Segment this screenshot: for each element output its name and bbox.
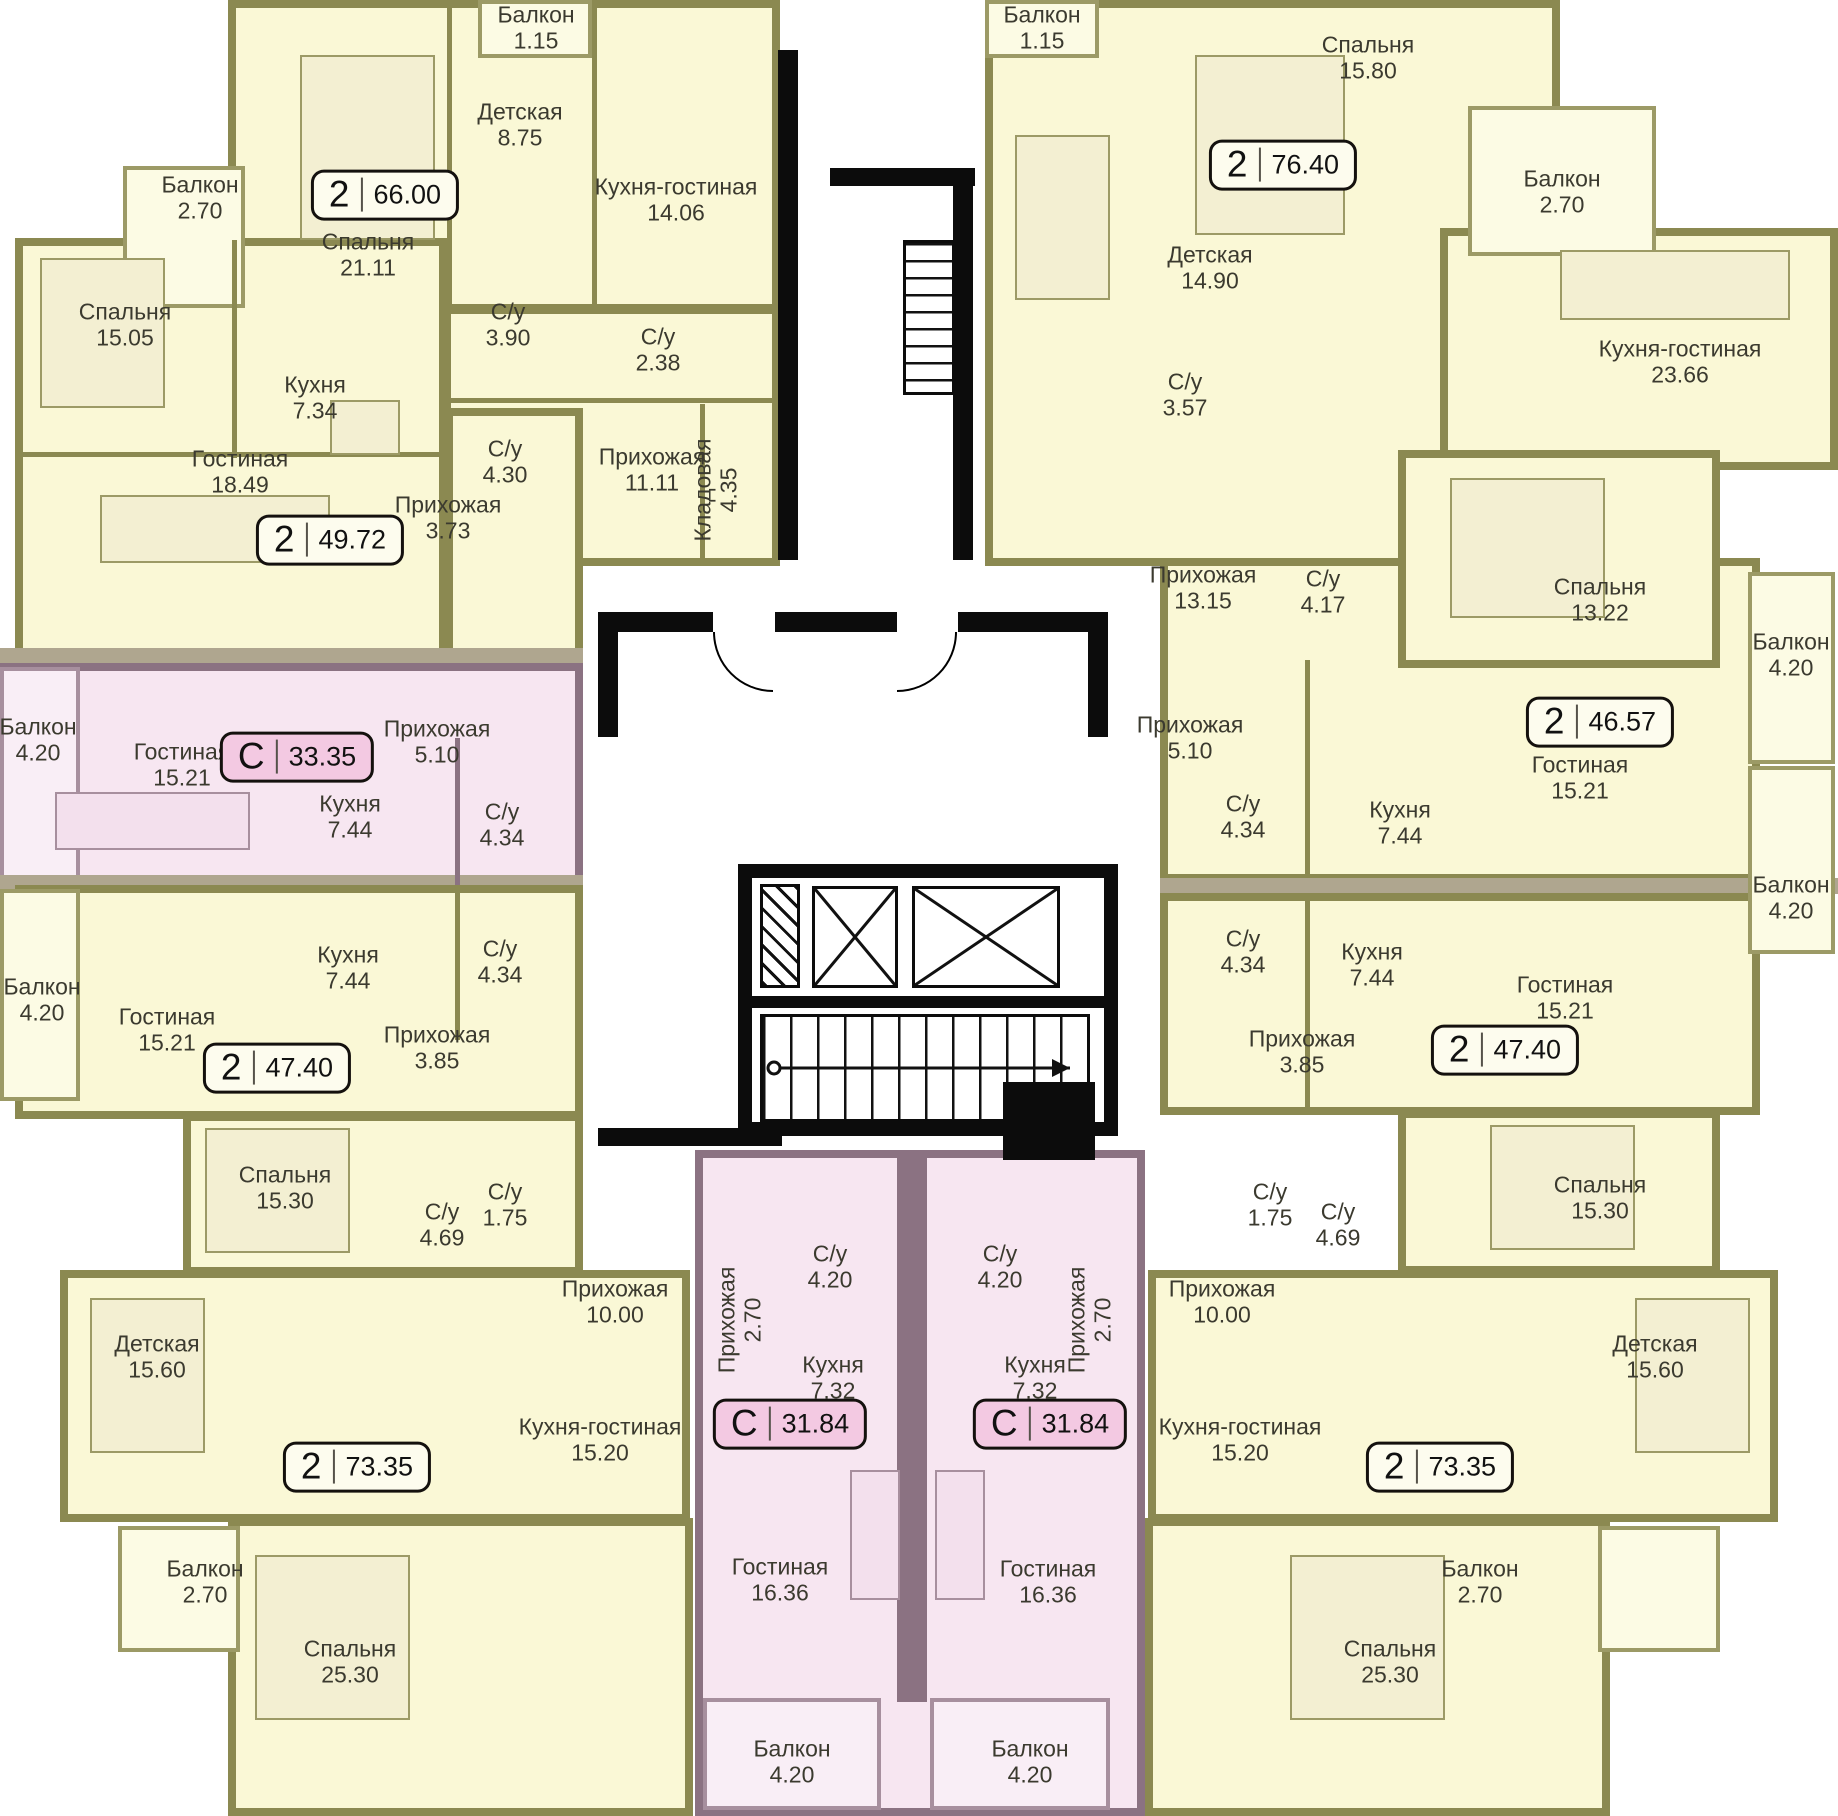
- room-area: 4.20: [770, 1762, 815, 1788]
- badge-area: 73.35: [346, 1452, 414, 1483]
- room-area: 4.20: [16, 740, 61, 766]
- room-label-kitchen: Кухня7.34: [284, 372, 346, 424]
- room-name: С/у: [813, 1241, 848, 1267]
- room-label-bathroom: С/у4.17: [1301, 566, 1346, 618]
- room-area: 7.44: [328, 817, 373, 843]
- room-name: Балкон: [3, 974, 80, 1000]
- room-label-bathroom: С/у4.69: [1316, 1199, 1361, 1251]
- elevator-icon: [812, 886, 898, 988]
- room-name: Кухня: [284, 372, 346, 398]
- room-area: 13.22: [1571, 600, 1629, 626]
- room-area: 3.73: [426, 518, 471, 544]
- partition: [1305, 660, 1310, 878]
- room-label-bedroom: Спальня15.05: [79, 299, 171, 351]
- room-name: С/у: [1168, 369, 1203, 395]
- room-name: С/у: [1321, 1199, 1356, 1225]
- badge-type: С: [991, 1405, 1018, 1444]
- room-name: Прихожая: [1064, 1267, 1090, 1374]
- partition: [443, 398, 780, 403]
- room-label-bathroom: С/у4.34: [480, 799, 525, 851]
- room-area: 25.30: [1361, 1662, 1419, 1688]
- room-area: 5.10: [415, 742, 460, 768]
- door-arc: [713, 632, 773, 692]
- room-area: 15.21: [153, 765, 211, 791]
- room-area: 5.10: [1168, 738, 1213, 764]
- room-label-hallway: Прихожая2.70: [1064, 1267, 1116, 1374]
- room-label-hallway: Прихожая5.10: [1137, 712, 1244, 764]
- room-name: Детская: [1167, 242, 1252, 268]
- room-name: Спальня: [1322, 32, 1414, 58]
- room-label-balcony: Балкон1.15: [1003, 2, 1080, 54]
- room-area: 8.75: [498, 125, 543, 151]
- room-label-bathroom: С/у4.69: [420, 1199, 465, 1251]
- room-name: Кухня: [1341, 939, 1403, 965]
- room-label-balcony: Балкон2.70: [1523, 166, 1600, 218]
- badge-area: 47.40: [1494, 1035, 1562, 1066]
- room-area: 15.20: [571, 1440, 629, 1466]
- room-label-bathroom: С/у1.75: [483, 1179, 528, 1231]
- room-area: 16.36: [1019, 1582, 1077, 1608]
- room-name: С/у: [425, 1199, 460, 1225]
- badge-divider: [306, 523, 308, 557]
- room-label-kitchen-living: Кухня-гостиная15.20: [514, 1414, 686, 1466]
- room-area: 15.60: [1626, 1357, 1684, 1383]
- badge-type: 2: [1227, 146, 1248, 185]
- room-label-living: Гостиная16.36: [732, 1554, 829, 1606]
- room-name: Прихожая: [384, 1022, 491, 1048]
- room-label-kitchen: Кухня7.32: [1004, 1352, 1066, 1404]
- room-label-bathroom: С/у4.34: [1221, 791, 1266, 843]
- balcony-apt-47-40-right: [1748, 766, 1835, 954]
- room-name: Балкон: [1752, 872, 1829, 898]
- room-area: 16.36: [751, 1580, 809, 1606]
- room-name: Балкон: [0, 714, 77, 740]
- badge-type: 2: [221, 1049, 242, 1088]
- apartment-badge-46-57: 246.57: [1526, 697, 1674, 748]
- core-wall: [598, 1128, 782, 1146]
- room-name: Кухня: [1369, 797, 1431, 823]
- room-area: 10.00: [1193, 1302, 1251, 1328]
- room-label-kitchen: Кухня7.44: [319, 791, 381, 843]
- room-label-kids-room: Детская8.75: [477, 99, 562, 151]
- room-name: Кухня-гостиная: [590, 174, 762, 200]
- room-area: 15.20: [1211, 1440, 1269, 1466]
- room-name: Спальня: [304, 1636, 396, 1662]
- room-area: 4.20: [1769, 898, 1814, 924]
- room-label-balcony: Балкон4.20: [753, 1736, 830, 1788]
- badge-area: 73.35: [1429, 1452, 1497, 1483]
- badge-divider: [769, 1407, 771, 1441]
- room-name: Прихожая: [395, 492, 502, 518]
- room-area: 14.90: [1181, 268, 1239, 294]
- corridor-wall: [775, 612, 897, 632]
- door-arc: [897, 632, 957, 692]
- room-area: 15.21: [1551, 778, 1609, 804]
- badge-area: 31.84: [782, 1409, 850, 1440]
- room-area: 10.00: [586, 1302, 644, 1328]
- room-area: 15.21: [1536, 998, 1594, 1024]
- room-area: 1.15: [514, 28, 559, 54]
- badge-area: 33.35: [289, 742, 357, 773]
- room-label-kids-room: Детская15.60: [114, 1331, 199, 1383]
- room-name: Спальня: [1554, 574, 1646, 600]
- room-label-living: Гостиная15.21: [1517, 972, 1614, 1024]
- room-area: 1.75: [483, 1205, 528, 1231]
- room-area: 13.15: [1174, 588, 1232, 614]
- room-name: Прихожая: [1137, 712, 1244, 738]
- room-name: Детская: [1612, 1331, 1697, 1357]
- room-area: 15.80: [1339, 58, 1397, 84]
- room-label-bedroom: Спальня15.30: [239, 1162, 331, 1214]
- core-wall: [953, 168, 973, 560]
- room-label-kitchen: Кухня7.32: [802, 1352, 864, 1404]
- room-area: 15.30: [1571, 1198, 1629, 1224]
- room-label-kitchen: Кухня7.44: [1341, 939, 1403, 991]
- room-label-bathroom: С/у1.75: [1248, 1179, 1293, 1231]
- staircase-top: [903, 240, 955, 395]
- room-name: С/у: [1226, 926, 1261, 952]
- apartment-badge-47-40-right: 247.40: [1431, 1025, 1579, 1076]
- room-label-kitchen-living: Кухня-гостиная23.66: [1599, 336, 1762, 388]
- room-name: Прихожая: [384, 716, 491, 742]
- room-label-hallway: Прихожая5.10: [384, 716, 491, 768]
- room-area: 4.20: [808, 1267, 853, 1293]
- room-name: Кухня: [802, 1352, 864, 1378]
- room-area: 23.66: [1651, 362, 1709, 388]
- apartment-badge-31-84-right: С31.84: [973, 1399, 1127, 1450]
- sofa-furniture: [850, 1470, 900, 1600]
- badge-area: 31.84: [1042, 1409, 1110, 1440]
- room-name: Детская: [477, 99, 562, 125]
- room-label-bedroom: Спальня15.30: [1554, 1172, 1646, 1224]
- badge-type: 2: [329, 176, 350, 215]
- room-area: 15.60: [128, 1357, 186, 1383]
- room-area: 15.21: [138, 1030, 196, 1056]
- badge-type: 2: [1384, 1448, 1405, 1487]
- room-area: 1.15: [1020, 28, 1065, 54]
- shaft-hatch: [760, 884, 800, 988]
- badge-divider: [1576, 705, 1578, 739]
- room-name: С/у: [485, 799, 520, 825]
- room-name: С/у: [641, 324, 676, 350]
- room-area: 4.34: [478, 962, 523, 988]
- room-name: С/у: [1253, 1179, 1288, 1205]
- room-area: 4.69: [420, 1225, 465, 1251]
- room-name: Кухня-гостиная: [1599, 336, 1762, 362]
- room-name: Балкон: [1441, 1556, 1518, 1582]
- badge-area: 66.00: [374, 180, 442, 211]
- room-label-bedroom: Спальня13.22: [1554, 574, 1646, 626]
- room-label-bedroom: Спальня25.30: [1344, 1636, 1436, 1688]
- badge-divider: [276, 740, 278, 774]
- apartment-badge-47-40-left: 247.40: [203, 1043, 351, 1094]
- room-label-kids-room: Детская14.90: [1167, 242, 1252, 294]
- wall-studios-center: [897, 1150, 927, 1702]
- partition: [447, 6, 452, 308]
- room-label-bedroom: Спальня25.30: [304, 1636, 396, 1688]
- room-label-bedroom: Спальня21.11: [322, 229, 414, 281]
- apartment-badge-33-35: С33.35: [220, 732, 374, 783]
- core-wall: [752, 996, 1104, 1008]
- apartment-badge-73-35-left: 273.35: [283, 1442, 431, 1493]
- badge-type: С: [238, 738, 265, 777]
- balcony-apt-73-35-right: [1598, 1526, 1720, 1652]
- room-area: 2.70: [1458, 1582, 1503, 1608]
- room-name: С/у: [983, 1241, 1018, 1267]
- room-name: Спальня: [79, 299, 171, 325]
- wall-divider: [0, 648, 583, 664]
- room-area: 15.05: [96, 325, 154, 351]
- room-name: Кухня: [319, 791, 381, 817]
- apartment-badge-49-72: 249.72: [256, 515, 404, 566]
- core-wall: [778, 50, 798, 560]
- room-area: 21.11: [340, 255, 396, 281]
- room-name: Кладовая: [690, 438, 716, 541]
- corridor-wall: [958, 612, 1108, 632]
- badge-area: 46.57: [1589, 707, 1657, 738]
- floor-plan: 266.00 249.72 С33.35 247.40 273.35 С31.8…: [0, 0, 1838, 1816]
- room-name: Гостиная: [119, 1004, 216, 1030]
- sofa-furniture: [1560, 250, 1790, 320]
- room-area: 3.90: [486, 325, 531, 351]
- partition: [1305, 895, 1310, 1113]
- room-name: Балкон: [497, 2, 574, 28]
- room-area: 4.34: [1221, 817, 1266, 843]
- badge-type: 2: [301, 1448, 322, 1487]
- room-area: 2.70: [1090, 1298, 1116, 1343]
- room-name: С/у: [488, 1179, 523, 1205]
- room-label-balcony: Балкон4.20: [991, 1736, 1068, 1788]
- badge-type: 2: [1544, 703, 1565, 742]
- room-name: Прихожая: [1169, 1276, 1276, 1302]
- room-name: Кухня: [1004, 1352, 1066, 1378]
- room-label-hallway: Прихожая13.15: [1150, 562, 1257, 614]
- room-area: 4.34: [480, 825, 525, 851]
- room-label-bathroom: С/у3.57: [1163, 369, 1208, 421]
- room-area: 4.20: [1008, 1762, 1053, 1788]
- room-label-kitchen: Кухня7.44: [317, 942, 379, 994]
- room-label-bathroom: С/у4.34: [1221, 926, 1266, 978]
- room-area: 2.70: [183, 1582, 228, 1608]
- room-name: Гостиная: [134, 739, 231, 765]
- room-area: 7.44: [1378, 823, 1423, 849]
- room-area: 14.06: [647, 200, 705, 226]
- badge-divider: [1029, 1407, 1031, 1441]
- partition: [592, 6, 597, 308]
- room-area: 2.70: [1540, 192, 1585, 218]
- apartment-badge-76-40: 276.40: [1209, 140, 1357, 191]
- room-area: 4.35: [716, 468, 742, 513]
- room-area: 7.44: [1350, 965, 1395, 991]
- room-label-balcony: Балкон4.20: [1752, 872, 1829, 924]
- apartment-badge-73-35-right: 273.35: [1366, 1442, 1514, 1493]
- elevator-icon: [912, 886, 1060, 988]
- room-label-storage: Кладовая4.35: [690, 438, 742, 541]
- room-name: Гостиная: [1532, 752, 1629, 778]
- bed-furniture: [1015, 135, 1110, 300]
- room-area: 4.30: [483, 462, 528, 488]
- room-label-balcony: Балкон4.20: [3, 974, 80, 1026]
- badge-divider: [1416, 1450, 1418, 1484]
- room-area: 18.49: [211, 472, 269, 498]
- room-name: Балкон: [991, 1736, 1068, 1762]
- room-name: Балкон: [1523, 166, 1600, 192]
- wall-divider: [1160, 878, 1838, 894]
- room-name: Прихожая: [714, 1267, 740, 1374]
- room-name: С/у: [483, 936, 518, 962]
- room-label-bathroom: С/у3.90: [486, 299, 531, 351]
- room-label-bathroom: С/у4.20: [978, 1241, 1023, 1293]
- room-name: Прихожая: [562, 1276, 669, 1302]
- badge-divider: [1481, 1033, 1483, 1067]
- room-label-hallway: Прихожая10.00: [562, 1276, 669, 1328]
- room-name: Детская: [114, 1331, 199, 1357]
- room-area: 11.11: [625, 470, 679, 496]
- room-name: Спальня: [1344, 1636, 1436, 1662]
- room-label-balcony: Балкон4.20: [0, 714, 77, 766]
- room-name: С/у: [488, 436, 523, 462]
- apartment-badge-31-84-left: С31.84: [713, 1399, 867, 1450]
- room-area: 3.85: [1280, 1052, 1325, 1078]
- badge-divider: [253, 1051, 255, 1085]
- room-name: Кухня-гостиная: [1154, 1414, 1326, 1440]
- room-label-living: Гостиная18.49: [192, 446, 289, 498]
- room-name: Гостиная: [1517, 972, 1614, 998]
- room-label-hallway: Прихожая2.70: [714, 1267, 766, 1374]
- sofa-furniture: [935, 1470, 985, 1600]
- room-name: Прихожая: [1150, 562, 1257, 588]
- room-name: Балкон: [1752, 629, 1829, 655]
- room-label-bathroom: С/у4.34: [478, 936, 523, 988]
- room-area: 4.20: [1769, 655, 1814, 681]
- badge-type: 2: [274, 521, 295, 560]
- room-area: 2.70: [178, 198, 223, 224]
- room-label-kids-room: Детская15.60: [1612, 1331, 1697, 1383]
- room-area: 7.44: [326, 968, 371, 994]
- corridor-wall: [598, 612, 618, 737]
- room-label-hallway: Прихожая3.85: [384, 1022, 491, 1074]
- room-name: Прихожая: [1249, 1026, 1356, 1052]
- room-name: Балкон: [166, 1556, 243, 1582]
- room-label-bathroom: С/у2.38: [636, 324, 681, 376]
- partition: [455, 890, 460, 1040]
- badge-area: 76.40: [1272, 150, 1340, 181]
- room-label-bedroom: Спальня15.80: [1322, 32, 1414, 84]
- room-name: Гостиная: [732, 1554, 829, 1580]
- room-label-balcony: Балкон2.70: [166, 1556, 243, 1608]
- room-label-living: Гостиная15.21: [1532, 752, 1629, 804]
- room-area: 7.34: [293, 398, 338, 424]
- badge-area: 47.40: [266, 1053, 334, 1084]
- badge-divider: [1259, 148, 1261, 182]
- balcony-studio-33-35: [0, 667, 80, 883]
- room-area: 3.57: [1163, 395, 1208, 421]
- badge-type: С: [731, 1405, 758, 1444]
- room-label-bathroom: С/у4.20: [808, 1241, 853, 1293]
- room-area: 4.20: [20, 1000, 65, 1026]
- stair-direction-arrow: [760, 1053, 1090, 1083]
- room-area: 15.30: [256, 1188, 314, 1214]
- room-name: Спальня: [239, 1162, 331, 1188]
- corridor-wall: [1088, 612, 1108, 737]
- room-area: 2.38: [636, 350, 681, 376]
- badge-divider: [361, 178, 363, 212]
- badge-area: 49.72: [319, 525, 387, 556]
- room-name: Гостиная: [192, 446, 289, 472]
- room-label-living: Гостиная15.21: [119, 1004, 216, 1056]
- room-area: 4.69: [1316, 1225, 1361, 1251]
- room-name: С/у: [491, 299, 526, 325]
- room-name: Гостиная: [1000, 1556, 1097, 1582]
- room-name: Кухня: [317, 942, 379, 968]
- room-area: 1.75: [1248, 1205, 1293, 1231]
- room-label-balcony: Балкон2.70: [161, 172, 238, 224]
- room-name: С/у: [1306, 566, 1341, 592]
- room-name: Балкон: [161, 172, 238, 198]
- room-label-living: Гостиная16.36: [1000, 1556, 1097, 1608]
- room-area: 4.17: [1301, 592, 1346, 618]
- room-label-bathroom: С/у4.30: [483, 436, 528, 488]
- room-label-kitchen-living: Кухня-гостиная14.06: [590, 174, 762, 226]
- apartment-badge-66-00: 266.00: [311, 170, 459, 221]
- sofa-furniture: [55, 792, 250, 850]
- room-name: Балкон: [1003, 2, 1080, 28]
- core-wall: [1003, 1082, 1095, 1160]
- room-area: 4.20: [978, 1267, 1023, 1293]
- room-label-balcony: Балкон4.20: [1752, 629, 1829, 681]
- room-area: 25.30: [321, 1662, 379, 1688]
- core-wall: [830, 168, 975, 186]
- room-label-kitchen-living: Кухня-гостиная15.20: [1154, 1414, 1326, 1466]
- room-name: Кухня-гостиная: [514, 1414, 686, 1440]
- room-area: 2.70: [740, 1298, 766, 1343]
- room-label-hallway: Прихожая10.00: [1169, 1276, 1276, 1328]
- room-name: Спальня: [322, 229, 414, 255]
- room-area: 4.34: [1221, 952, 1266, 978]
- room-label-hallway: Прихожая3.73: [395, 492, 502, 544]
- room-label-living: Гостиная15.21: [134, 739, 231, 791]
- room-name: С/у: [1226, 791, 1261, 817]
- partition: [232, 240, 237, 458]
- badge-divider: [333, 1450, 335, 1484]
- room-label-kitchen: Кухня7.44: [1369, 797, 1431, 849]
- room-label-balcony: Балкон1.15: [497, 2, 574, 54]
- room-name: Балкон: [753, 1736, 830, 1762]
- room-name: Спальня: [1554, 1172, 1646, 1198]
- room-area: 3.85: [415, 1048, 460, 1074]
- badge-type: 2: [1449, 1031, 1470, 1070]
- room-label-hallway: Прихожая3.85: [1249, 1026, 1356, 1078]
- room-label-balcony: Балкон2.70: [1441, 1556, 1518, 1608]
